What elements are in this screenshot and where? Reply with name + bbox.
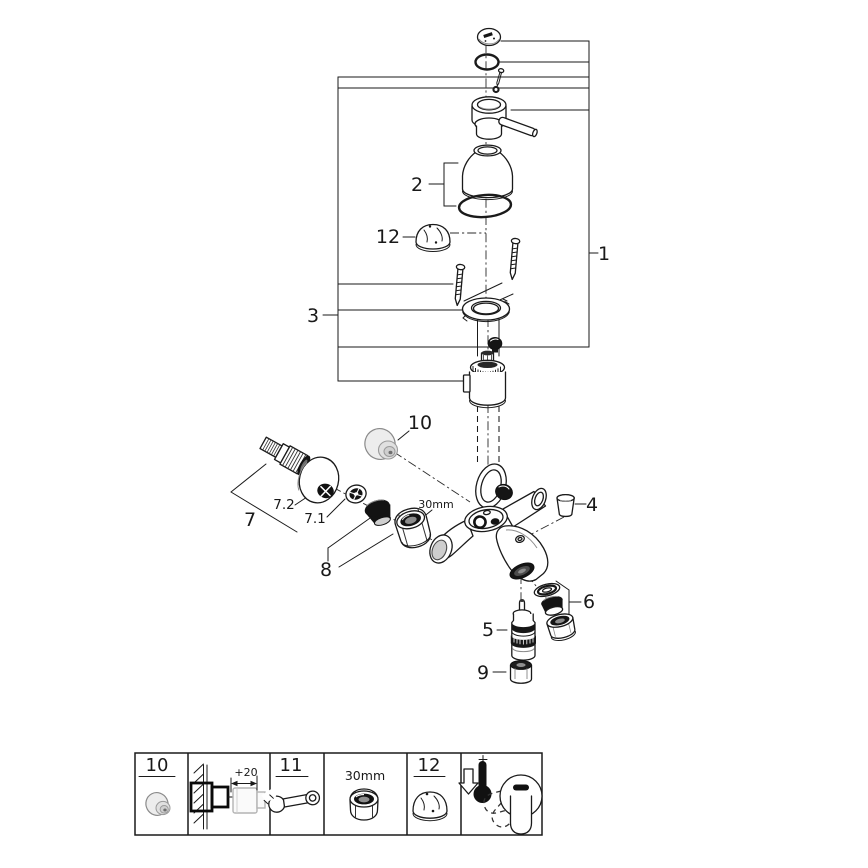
handle-slot [513,785,529,791]
callout-3: 3 [307,305,319,327]
dome-cap-icon [413,792,447,821]
union-nut-30mm [392,505,434,551]
callout-1: 1 [598,243,610,265]
wrench-icon [260,786,320,817]
legend-nut-label: 30mm [345,768,385,783]
mounting-cap-12 [416,225,450,252]
legend-cell-11: 11 [260,755,320,817]
cartridge [464,351,506,408]
cartridge-sleeve [463,145,513,199]
legend-cell-12: 12 [413,755,447,821]
callout-7-1: 7.1 [304,511,325,527]
legend-10-label: 10 [146,755,169,776]
legend-11-label: 11 [280,755,303,776]
handle-nut [492,86,499,93]
legend-cell-30mm: 30mm [345,768,385,820]
lever-handle [472,97,538,139]
callout-8: 8 [320,559,332,581]
callout-6: 6 [583,591,595,613]
callout-2: 2 [411,174,423,196]
callout-9: 9 [477,662,489,684]
callout-nut-size: 30mm [418,498,453,511]
callout-4: 4 [586,494,598,516]
callout-10: 10 [408,412,432,434]
callout-7-2: 7.2 [273,497,294,513]
stop-screw [488,338,502,353]
callout-7: 7 [244,509,256,531]
handle-lever [511,796,532,834]
aerator-housing [546,612,578,643]
logo-cap-disc [478,29,501,46]
legend-cell-10: 10 [139,755,175,819]
cap-nut-icon [142,789,172,820]
mounting-screw-left [453,264,465,306]
callout-2-bracket [429,163,458,206]
exploded-parts-diagram-page: 1 2 3 12 10 7 7.2 7.1 8 30mm 4 6 5 9 10 [0,0,868,868]
o-ring-small [476,55,499,70]
legend-cell-temperature [459,756,542,835]
faucet-exploded-diagram: 1 2 3 12 10 7 7.2 7.1 8 30mm 4 6 5 9 10 [0,0,868,868]
wall-flange-ring [463,298,510,322]
washer-7-1 [344,483,368,506]
spout [496,526,547,583]
cover-cap-10 [359,423,400,464]
callout-5: 5 [482,619,494,641]
wall-mount-depth-icon: +20 [191,764,265,829]
cold-temperature-lever-icon [459,756,542,835]
legend-cell-wall-depth: +20 [191,764,265,829]
callout-12: 12 [376,226,400,248]
diverter-cartridge [511,599,536,660]
nut-30mm-icon [350,789,378,820]
diverter-knob-9 [511,661,532,684]
mounting-screw-right [508,238,520,280]
filter-cone [363,496,396,528]
legend-strip: 10 +20 [135,753,542,835]
legend-12-label: 12 [418,755,441,776]
plug-cap-4 [557,495,574,517]
legend-depth-label: +20 [234,766,257,779]
